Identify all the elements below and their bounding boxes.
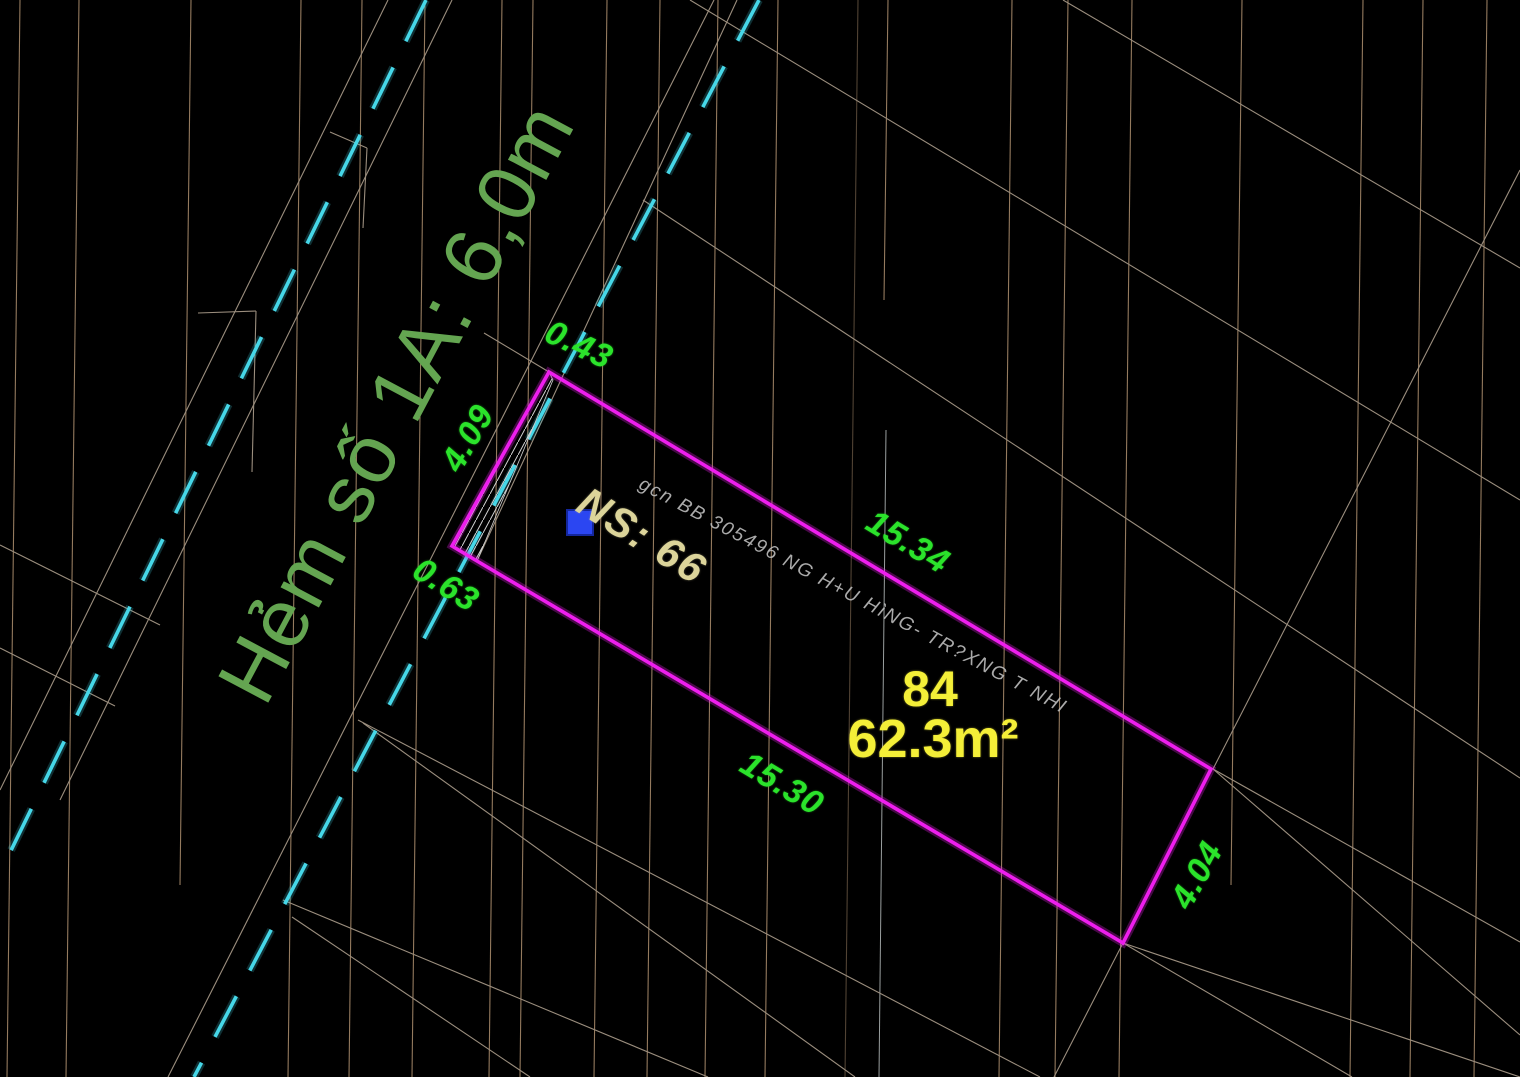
parcel-outline[interactable] bbox=[452, 372, 1211, 943]
parcel-area-label[interactable]: 62.3m² bbox=[847, 712, 1018, 766]
cad-viewport[interactable]: Hẻm số 1A: 6,0m 4.09 0.43 0.63 15.34 15.… bbox=[0, 0, 1520, 1077]
parcel-number-label[interactable]: 84 bbox=[902, 664, 958, 714]
